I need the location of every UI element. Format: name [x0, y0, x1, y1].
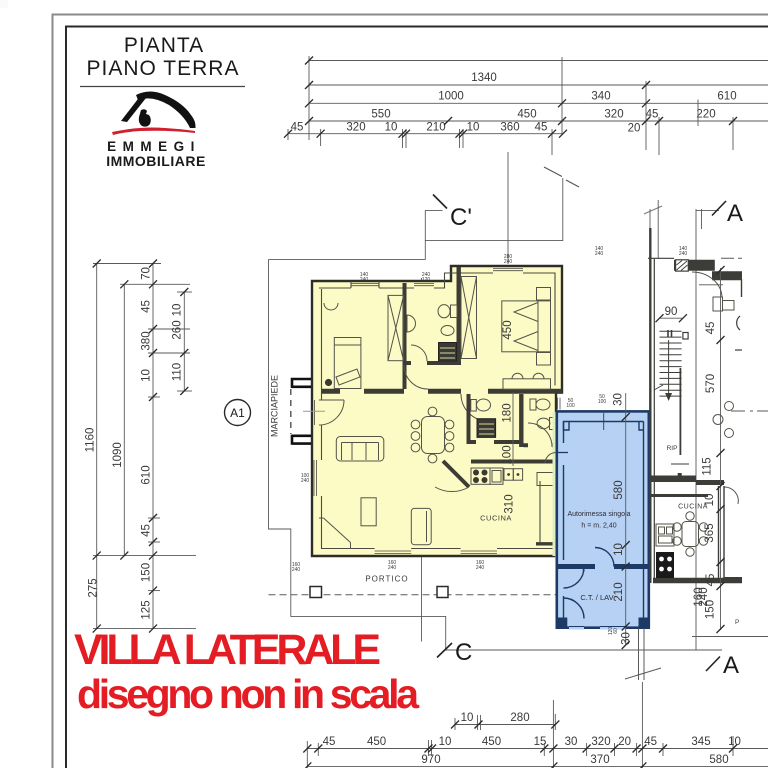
svg-text:C.T. / LAV: C.T. / LAV — [580, 593, 613, 602]
svg-text:450: 450 — [367, 736, 386, 748]
svg-text:45: 45 — [291, 122, 304, 134]
svg-text:45: 45 — [705, 322, 717, 335]
svg-text:disegno non in scala: disegno non in scala — [77, 671, 420, 717]
svg-text:10: 10 — [439, 736, 452, 748]
svg-text:110: 110 — [172, 363, 184, 381]
svg-text:240: 240 — [595, 251, 604, 257]
svg-text:45: 45 — [323, 736, 336, 748]
svg-text:A: A — [723, 652, 739, 679]
svg-text:30: 30 — [613, 393, 625, 406]
svg-text:IMMOBILIARE: IMMOBILIARE — [106, 153, 206, 169]
svg-text:1090: 1090 — [112, 442, 124, 468]
svg-text:240: 240 — [301, 478, 310, 484]
svg-text:30: 30 — [565, 736, 578, 748]
svg-text:10: 10 — [141, 369, 153, 382]
svg-text:45: 45 — [705, 574, 717, 587]
svg-text:345: 345 — [691, 736, 710, 748]
svg-text:120: 120 — [422, 277, 431, 283]
svg-text:90: 90 — [665, 306, 678, 318]
svg-text:PORTICO: PORTICO — [365, 575, 408, 584]
svg-text:360: 360 — [500, 122, 519, 134]
svg-text:115: 115 — [702, 457, 714, 475]
svg-text:1000: 1000 — [438, 91, 464, 103]
svg-text:125: 125 — [141, 600, 153, 619]
svg-text:450: 450 — [517, 109, 536, 121]
svg-text:60: 60 — [613, 628, 619, 634]
svg-text:100: 100 — [566, 403, 575, 409]
svg-text:EMMEGI: EMMEGI — [107, 139, 201, 154]
svg-text:365: 365 — [704, 523, 716, 542]
svg-text:370: 370 — [590, 754, 609, 766]
svg-text:100: 100 — [598, 399, 607, 405]
svg-text:45: 45 — [141, 524, 153, 537]
svg-text:275: 275 — [88, 578, 100, 597]
svg-text:10: 10 — [172, 304, 184, 317]
svg-text:550: 550 — [371, 109, 390, 121]
svg-text:310: 310 — [504, 494, 516, 513]
svg-text:580: 580 — [613, 480, 625, 499]
svg-text:150: 150 — [705, 600, 717, 619]
svg-text:1340: 1340 — [471, 72, 497, 84]
svg-text:10: 10 — [467, 122, 480, 134]
svg-text:210: 210 — [426, 122, 445, 134]
svg-text:100: 100 — [502, 445, 514, 464]
svg-text:h = m. 2,40: h = m. 2,40 — [581, 523, 616, 530]
svg-text:240: 240 — [504, 259, 513, 265]
svg-text:RIP: RIP — [667, 445, 678, 452]
svg-text:240: 240 — [476, 565, 485, 571]
svg-text:280: 280 — [510, 712, 529, 724]
svg-text:45: 45 — [644, 736, 657, 748]
svg-text:240: 240 — [360, 277, 369, 283]
svg-text:MARCIAPIEDE: MARCIAPIEDE — [270, 375, 280, 437]
svg-text:20: 20 — [618, 736, 631, 748]
svg-text:260: 260 — [172, 320, 184, 339]
svg-text:70: 70 — [141, 267, 153, 280]
svg-text:320: 320 — [604, 109, 623, 121]
svg-text:C': C' — [450, 204, 472, 231]
svg-text:CUCINA: CUCINA — [480, 514, 512, 523]
svg-text:10: 10 — [613, 543, 625, 556]
svg-text:450: 450 — [502, 320, 514, 339]
svg-text:10: 10 — [461, 712, 474, 724]
svg-text:180: 180 — [502, 403, 514, 422]
svg-text:10: 10 — [704, 494, 716, 507]
svg-text:150: 150 — [141, 563, 153, 582]
svg-text:C: C — [455, 639, 472, 666]
svg-text:220: 220 — [696, 109, 715, 121]
svg-text:P: P — [735, 619, 739, 626]
svg-text:VILLA LATERALE: VILLA LATERALE — [74, 626, 381, 674]
svg-text:1160: 1160 — [85, 428, 97, 453]
svg-text:970: 970 — [421, 754, 440, 766]
svg-text:340: 340 — [591, 91, 610, 103]
svg-text:380: 380 — [141, 331, 153, 350]
svg-text:PIANO TERRA: PIANO TERRA — [87, 57, 240, 80]
svg-text:A: A — [727, 200, 743, 227]
svg-text:450: 450 — [482, 736, 501, 748]
svg-text:580: 580 — [709, 754, 728, 766]
svg-text:10: 10 — [385, 122, 398, 134]
svg-text:Autorimessa singola: Autorimessa singola — [567, 511, 630, 518]
svg-text:45: 45 — [141, 300, 153, 313]
svg-text:240: 240 — [679, 251, 688, 257]
svg-text:45: 45 — [535, 122, 548, 134]
svg-text:610: 610 — [717, 91, 736, 103]
svg-text:210: 210 — [613, 582, 625, 601]
svg-text:240: 240 — [292, 567, 301, 573]
svg-text:610: 610 — [141, 465, 153, 484]
svg-text:320: 320 — [591, 736, 610, 748]
svg-text:320: 320 — [346, 122, 365, 134]
svg-text:PIANTA: PIANTA — [124, 34, 204, 57]
svg-text:570: 570 — [705, 374, 717, 393]
svg-text:30: 30 — [621, 632, 633, 645]
svg-text:240: 240 — [388, 565, 397, 571]
svg-text:20: 20 — [628, 123, 641, 135]
svg-text:A1: A1 — [230, 406, 245, 420]
